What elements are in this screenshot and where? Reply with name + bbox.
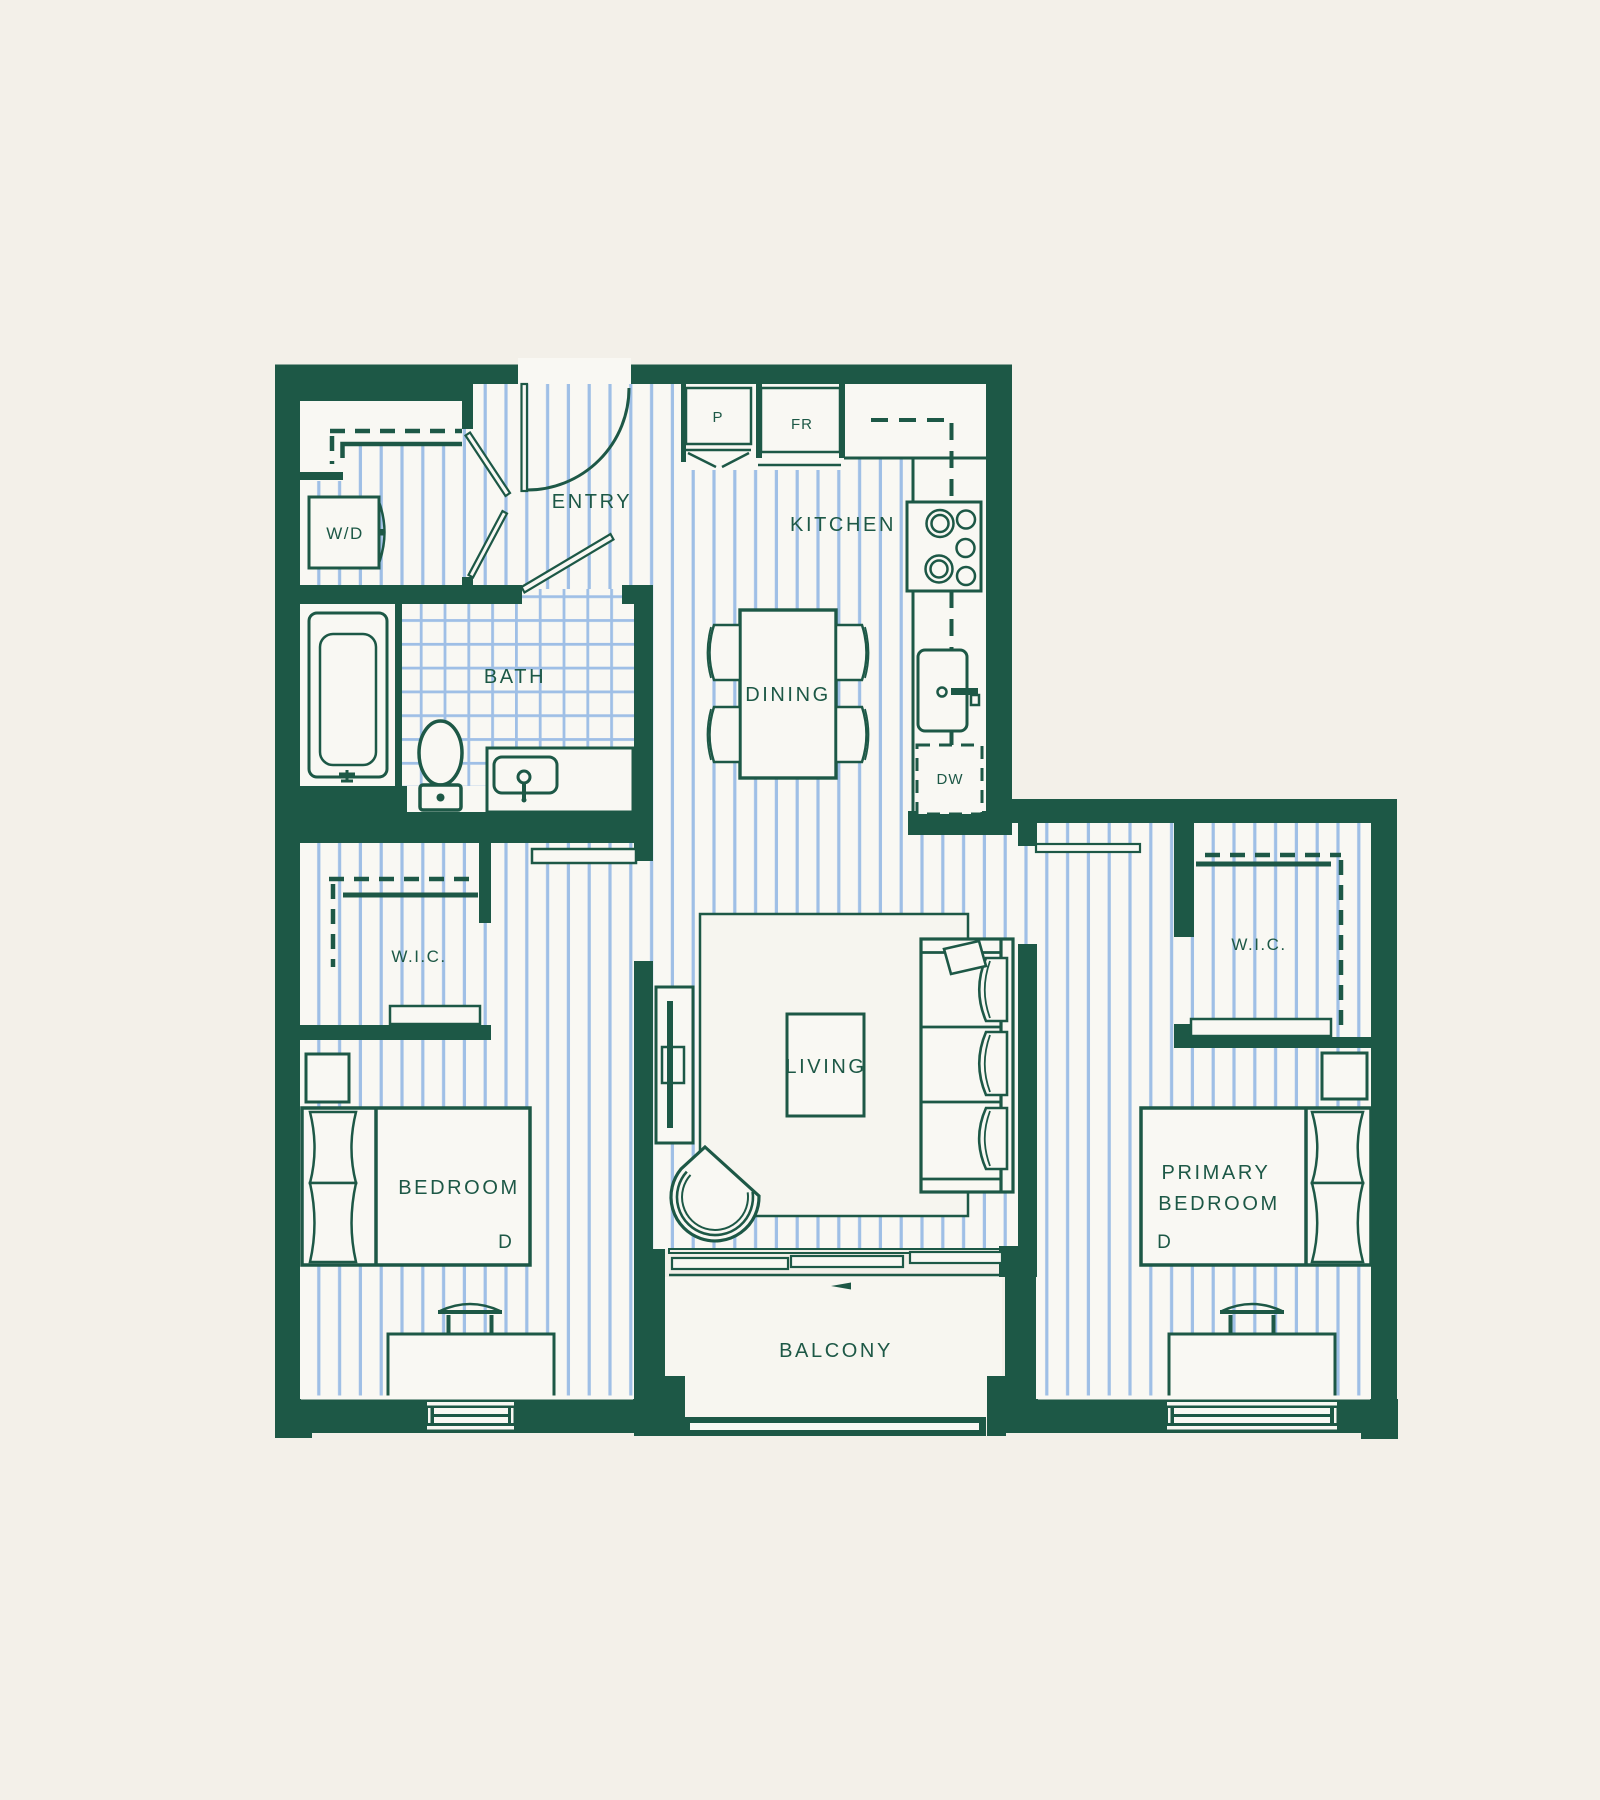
svg-text:BALCONY: BALCONY [779, 1340, 893, 1362]
svg-text:P: P [712, 409, 723, 426]
svg-text:LIVING: LIVING [785, 1056, 866, 1078]
svg-text:W.I.C.: W.I.C. [1231, 935, 1286, 954]
svg-text:BEDROOM: BEDROOM [398, 1177, 520, 1199]
svg-text:W.I.C.: W.I.C. [391, 947, 446, 966]
svg-text:DW: DW [937, 771, 964, 788]
svg-text:D: D [498, 1232, 512, 1253]
svg-text:BATH: BATH [484, 666, 546, 688]
svg-text:KITCHEN: KITCHEN [790, 514, 896, 536]
svg-text:DINING: DINING [745, 684, 831, 706]
svg-text:FR: FR [791, 416, 813, 433]
svg-text:ENTRY: ENTRY [552, 491, 632, 513]
svg-text:PRIMARY: PRIMARY [1162, 1162, 1271, 1184]
svg-text:D: D [1157, 1232, 1171, 1253]
svg-text:BEDROOM: BEDROOM [1158, 1193, 1280, 1215]
svg-text:W/D: W/D [326, 524, 364, 543]
